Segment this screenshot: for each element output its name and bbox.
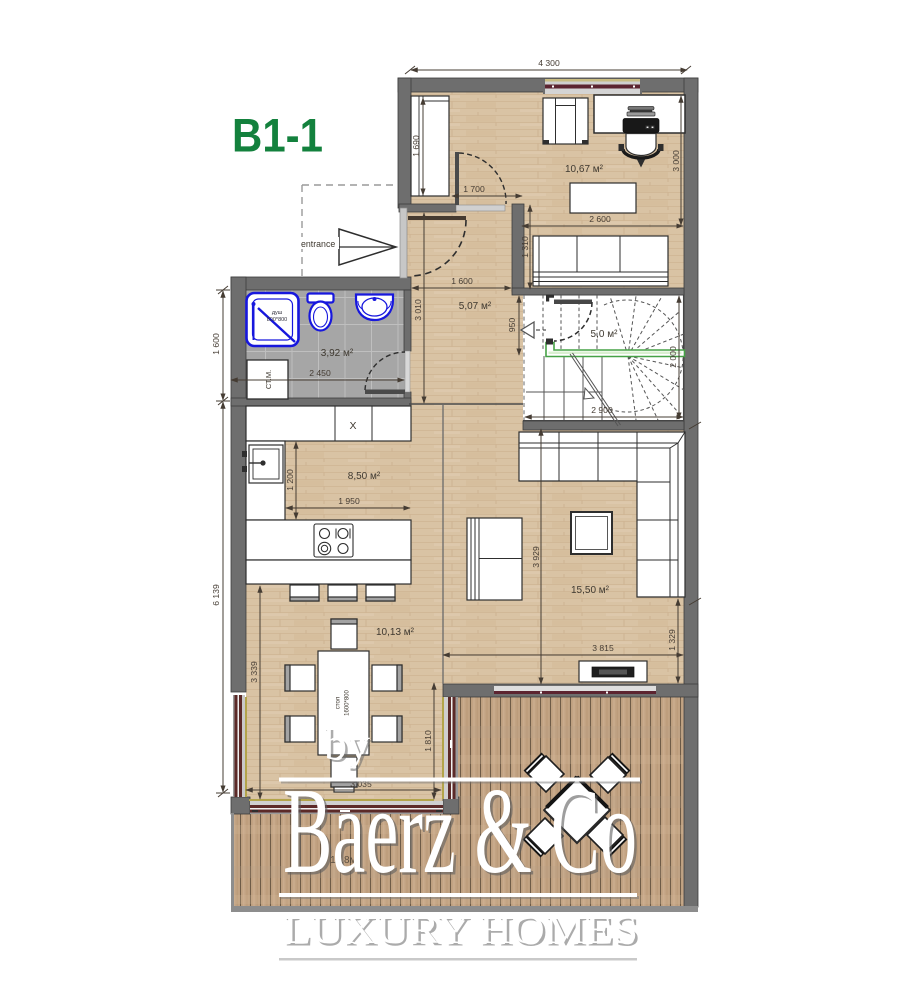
svg-text:душ: душ: [272, 310, 283, 316]
svg-text:1 600: 1 600: [211, 333, 221, 355]
svg-text:15,50 м²: 15,50 м²: [571, 585, 610, 596]
svg-text:6 139: 6 139: [211, 584, 221, 606]
svg-text:стол: стол: [336, 696, 342, 709]
svg-text:2 600: 2 600: [589, 214, 611, 224]
svg-text:B1-1: B1-1: [232, 109, 323, 162]
svg-text:1600*800: 1600*800: [345, 689, 351, 715]
svg-text:entrance: entrance: [301, 239, 335, 249]
svg-text:10,13 м²: 10,13 м²: [376, 627, 415, 638]
svg-text:8,50 м²: 8,50 м²: [348, 471, 381, 482]
svg-text:1 310: 1 310: [520, 236, 530, 258]
svg-text:10,67 м²: 10,67 м²: [565, 164, 604, 175]
svg-text:3 339: 3 339: [249, 661, 259, 683]
svg-text:5,0 м²: 5,0 м²: [591, 329, 619, 340]
svg-text:Baerz & Co: Baerz & Co: [283, 762, 637, 899]
svg-text:1 950: 1 950: [338, 496, 360, 506]
svg-text:X: X: [349, 420, 356, 432]
svg-text:1 329: 1 329: [667, 629, 677, 651]
svg-text:4 300: 4 300: [538, 58, 560, 68]
svg-text:950: 950: [507, 318, 517, 333]
svg-text:1 700: 1 700: [463, 184, 485, 194]
svg-text:1 690: 1 690: [411, 135, 421, 157]
svg-text:3 929: 3 929: [531, 546, 541, 568]
svg-text:2 900: 2 900: [591, 405, 613, 415]
svg-text:1 200: 1 200: [285, 469, 295, 491]
svg-text:3,92 м²: 3,92 м²: [321, 348, 354, 359]
svg-text:3 010: 3 010: [413, 299, 423, 321]
svg-text:5,07 м²: 5,07 м²: [459, 301, 492, 312]
svg-text:2 450: 2 450: [309, 368, 331, 378]
svg-text:3 815: 3 815: [592, 643, 614, 653]
svg-text:LUXURY HOMES: LUXURY HOMES: [283, 907, 638, 952]
svg-text:3 000: 3 000: [671, 150, 681, 172]
svg-text:1 810: 1 810: [423, 730, 433, 752]
svg-text:2 000: 2 000: [668, 346, 678, 368]
svg-text:800*800: 800*800: [267, 317, 288, 323]
svg-text:1 600: 1 600: [451, 276, 473, 286]
